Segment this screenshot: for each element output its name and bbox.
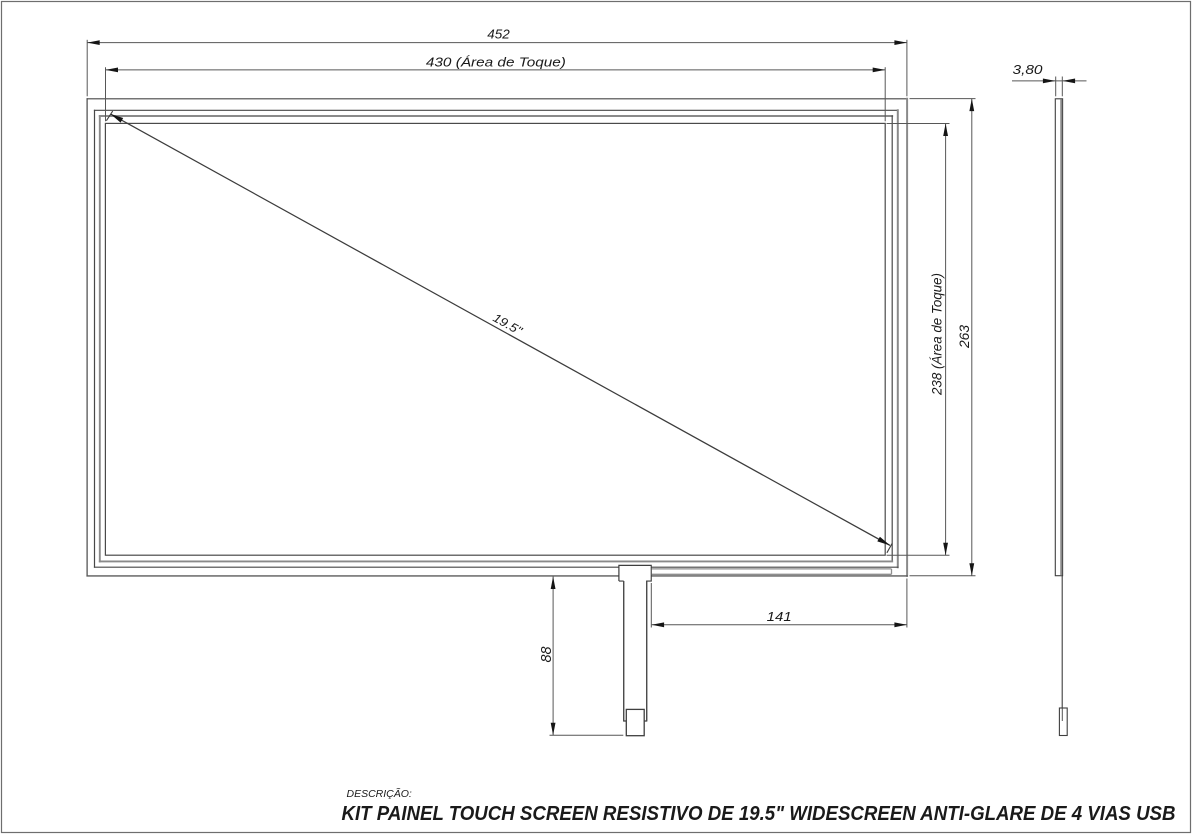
svg-text:KIT PAINEL TOUCH SCREEN RESIST: KIT PAINEL TOUCH SCREEN RESISTIVO DE 19.… [342,802,1176,825]
svg-text:430 (Área de Toque): 430 (Área de Toque) [426,55,566,70]
svg-text:238 (Área de Toque): 238 (Área de Toque) [928,273,944,396]
svg-text:88: 88 [538,646,555,663]
svg-text:3,80: 3,80 [1013,62,1044,77]
svg-text:263: 263 [956,325,972,349]
svg-text:141: 141 [767,609,792,624]
svg-text:DESCRIÇÃO:: DESCRIÇÃO: [347,787,412,800]
svg-text:452: 452 [487,27,510,42]
